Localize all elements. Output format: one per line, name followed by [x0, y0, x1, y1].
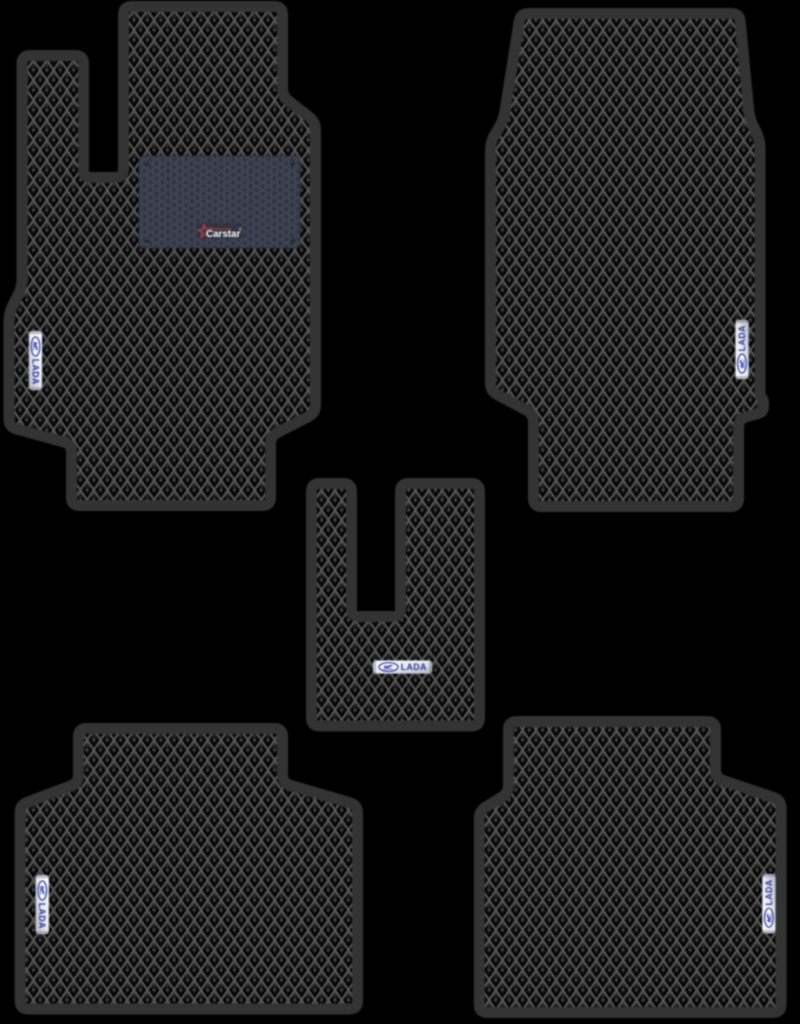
svg-text:Carstar: Carstar: [206, 229, 240, 240]
